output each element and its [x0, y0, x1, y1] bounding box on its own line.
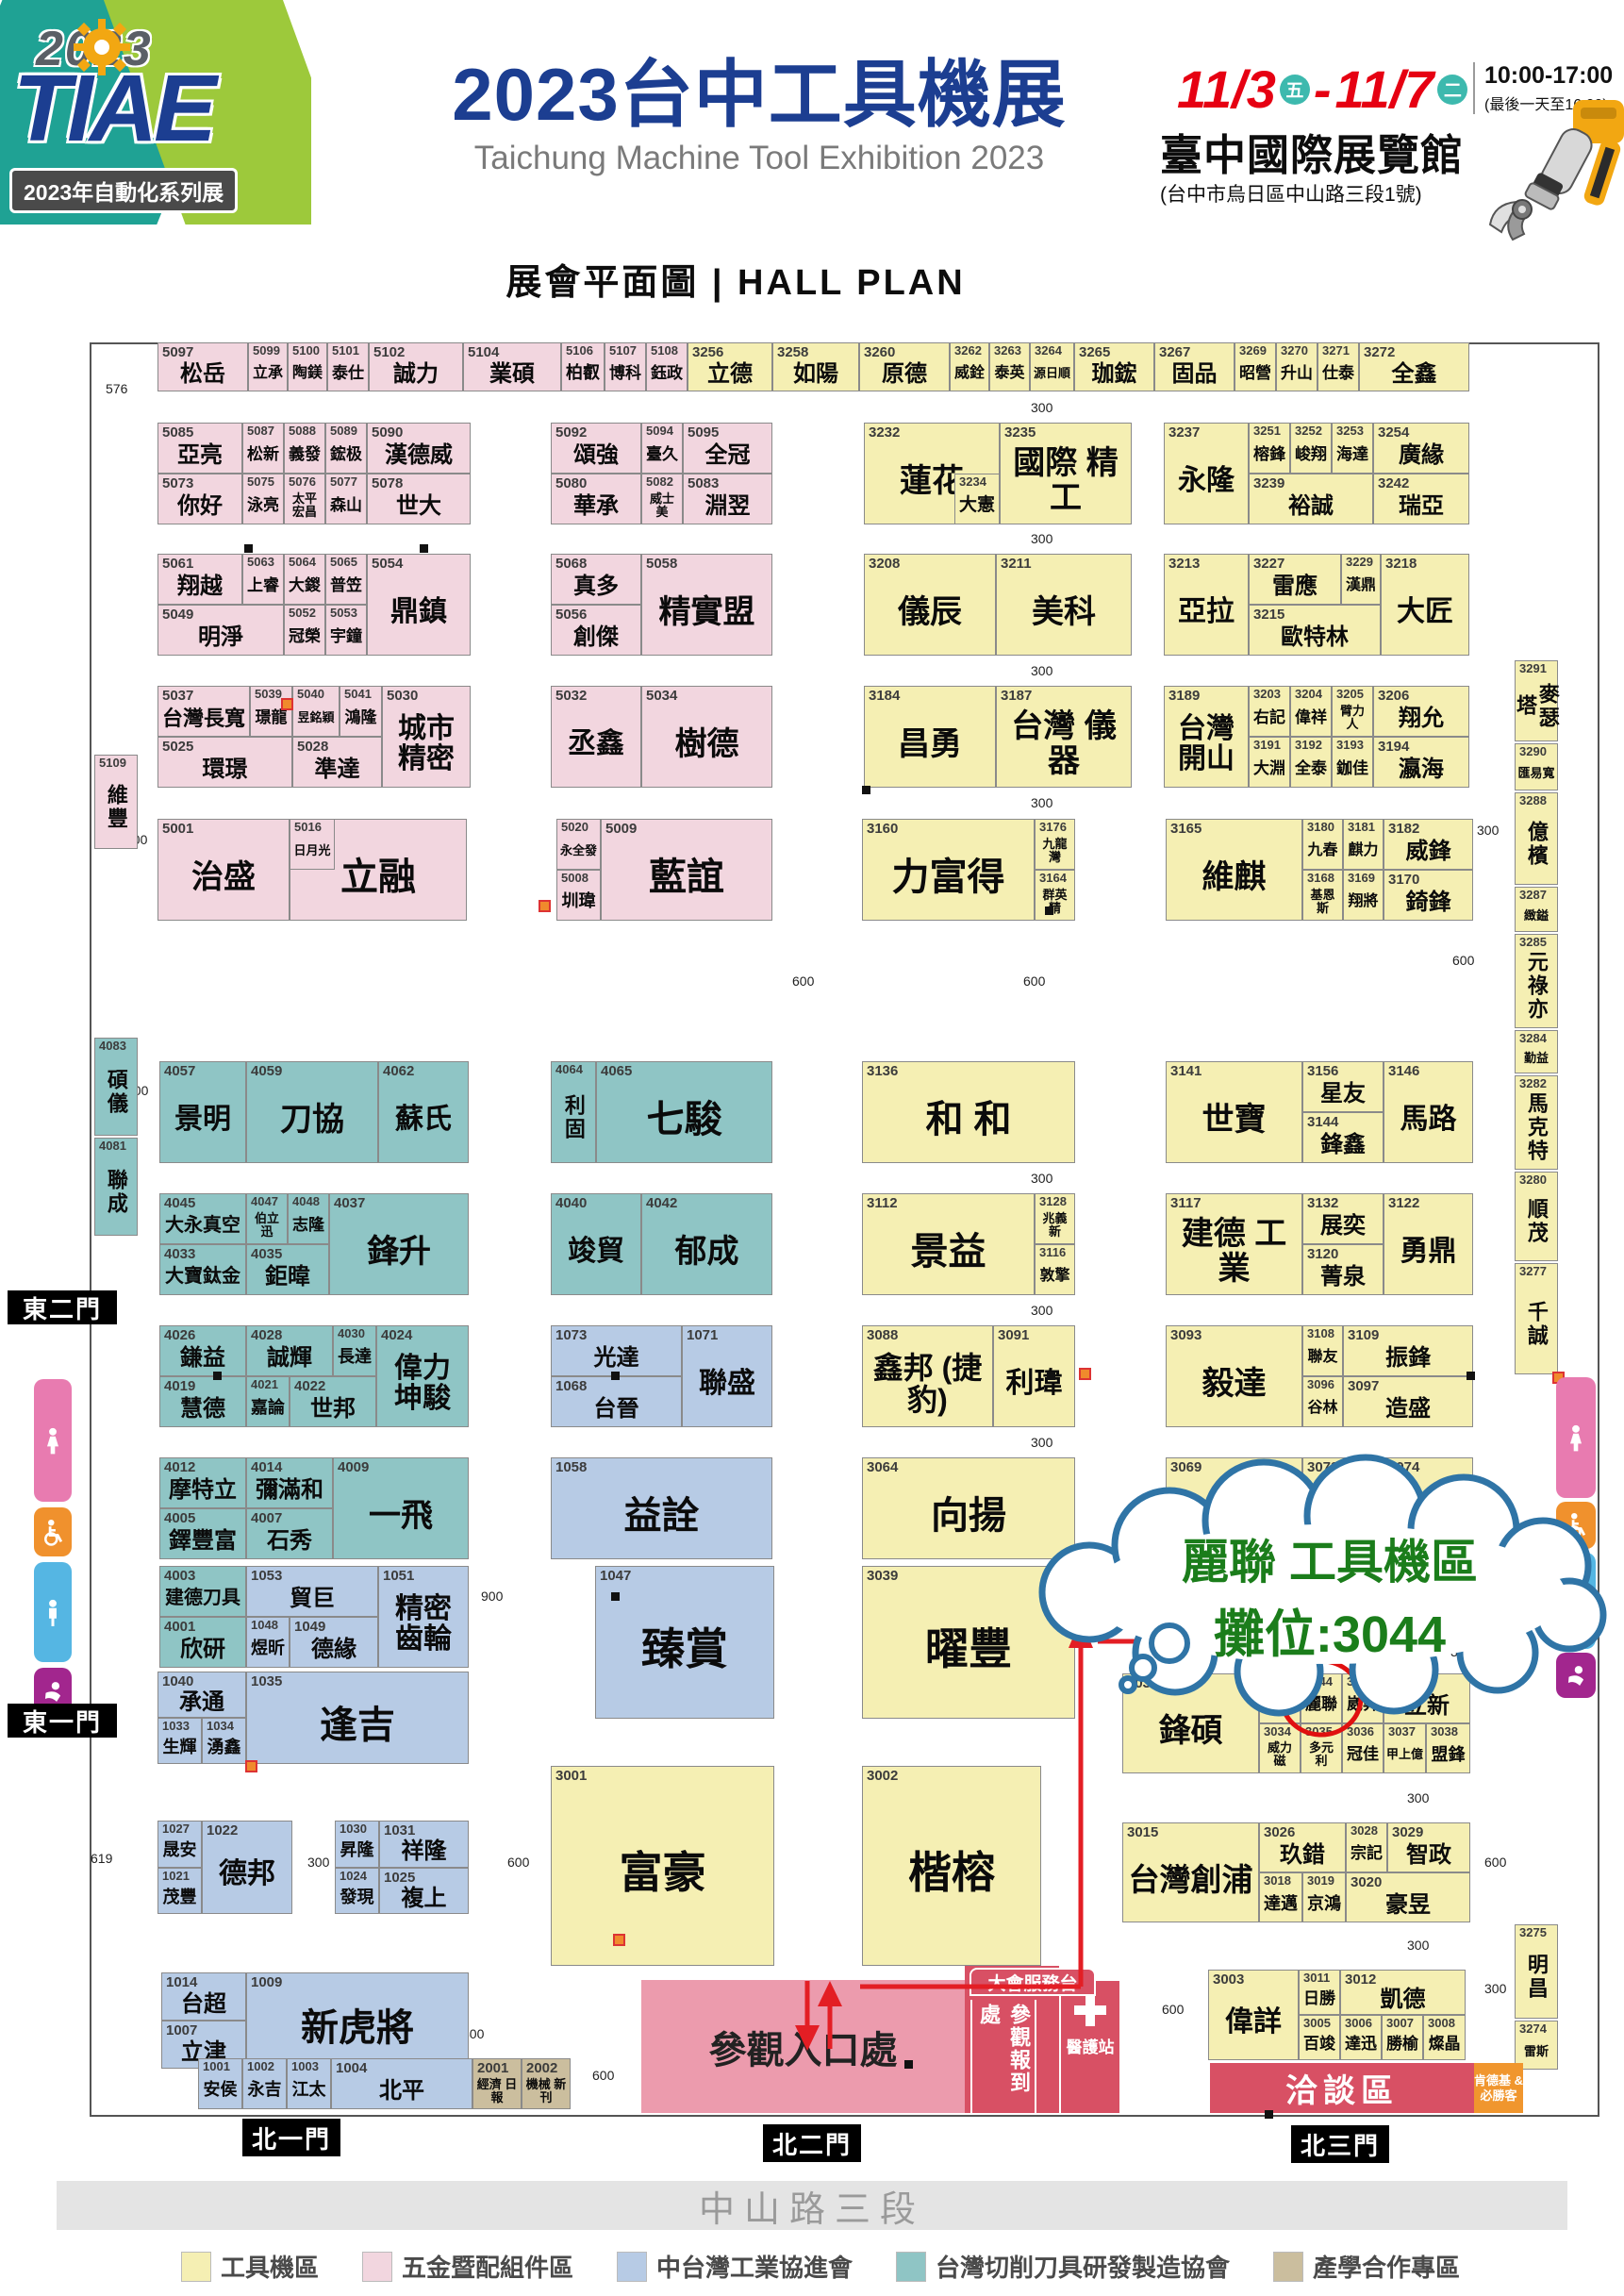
booth-number: 3270: [1277, 343, 1317, 358]
pillar-marker: [1265, 2110, 1273, 2119]
booth-3046: 3046立新: [1384, 1673, 1470, 1723]
booth-number: 3122: [1384, 1194, 1472, 1211]
booth-3108: 3108聯友: [1302, 1325, 1343, 1376]
booth-number: 3256: [688, 343, 771, 360]
booth-company-name: 泰仕: [328, 358, 368, 391]
booth-3120: 3120菁泉: [1302, 1244, 1384, 1295]
booth-number: 3001: [552, 1767, 773, 1784]
booth-company-name: 翔越: [158, 572, 241, 604]
booth-company-name: 鋒升: [330, 1211, 468, 1294]
booth-number: 3181: [1344, 820, 1383, 835]
booth-number: 3156: [1303, 1062, 1383, 1079]
booth-number: 3026: [1260, 1823, 1345, 1840]
booth-number: 5083: [684, 474, 771, 491]
booth-company-name: 益詮: [552, 1475, 771, 1558]
booth-number: 3019: [1303, 1873, 1345, 1888]
booth-5052: 5052冠榮: [284, 605, 325, 656]
legend-swatch: [617, 2252, 647, 2282]
booth-number: 3028: [1347, 1823, 1386, 1838]
booth-3275: 3275明昌: [1515, 1924, 1558, 2019]
booth-4007: 4007石秀: [246, 1508, 333, 1559]
pillar-marker: [862, 786, 870, 794]
booth-company-name: 敦擎: [1036, 1260, 1074, 1294]
booth-number: 3274: [1516, 2021, 1557, 2037]
booth-number: 3191: [1250, 738, 1289, 753]
booth-number: 3180: [1303, 820, 1342, 835]
booth-5101: 5101泰仕: [327, 342, 369, 391]
booth-number: 4014: [247, 1458, 332, 1475]
booth-number: 3237: [1165, 424, 1248, 441]
booth-number: 5030: [383, 687, 470, 704]
booth-number: 1009: [247, 1973, 468, 1990]
booth-number: 3260: [860, 343, 949, 360]
fire-equipment-marker: [245, 1760, 257, 1772]
booth-company-name: 複上: [380, 1886, 468, 1913]
booth-company-name: 精實盟: [642, 572, 771, 655]
booth-3206: 3206翔允: [1373, 686, 1469, 737]
booth-5108: 5108鈺政: [646, 342, 688, 391]
booth-1025: 1025複上: [379, 1868, 469, 1914]
booth-company-name: 城市 精密: [383, 704, 470, 787]
booth-4012: 4012摩特立: [159, 1457, 246, 1508]
booth-company-name: 立承: [249, 358, 287, 391]
booth-number: 3038: [1427, 1724, 1469, 1739]
booth-number: 1004: [332, 2059, 472, 2076]
booth-1001: 1001安侯: [198, 2058, 242, 2109]
pillar-marker: [1045, 1592, 1053, 1601]
booth-5088: 5088義發: [284, 423, 325, 474]
dimension-label: 300: [1407, 1938, 1429, 1953]
booth-number: 3011: [1300, 1971, 1339, 1986]
booth-company-name: 永全發: [557, 835, 600, 869]
booth-number: 3003: [1209, 1971, 1298, 1988]
booth-3284: 3284勤益: [1515, 1030, 1558, 1073]
booth-4040: 4040竣貿: [551, 1193, 641, 1295]
hall-map: 5097松岳5099立承5100陶鎂5101泰仕5102誠力5104業碩5106…: [0, 0, 1624, 2296]
booth-company-name: 歐特林: [1250, 623, 1380, 655]
booth-number: 5101: [328, 343, 368, 358]
legend-swatch: [362, 2252, 392, 2282]
booth-1048: 1048煜昕: [246, 1617, 290, 1668]
booth-number: 5073: [158, 474, 241, 491]
dimension-label: 600: [1452, 953, 1474, 968]
booth-3272: 3272全鑫: [1359, 342, 1469, 391]
booth-5058: 5058精實盟: [641, 554, 772, 656]
booth-3270: 3270升山: [1276, 342, 1317, 391]
booth-3287: 3287緻鎰: [1515, 887, 1558, 932]
booth-number: 3036: [1343, 1724, 1383, 1739]
booth-3160: 3160力富得: [862, 819, 1035, 921]
booth-5092: 5092頌強: [551, 423, 641, 474]
booth-number: 4021: [247, 1377, 289, 1392]
dimension-label: 600: [792, 973, 814, 989]
kfc-pizzahut-area: 肯德基 & 必勝客: [1474, 2063, 1523, 2113]
booth-2002: 2002機械 新刊: [522, 2058, 571, 2109]
booth-5100: 5100陶鎂: [288, 342, 327, 391]
booth-4083: 4083碩儀: [94, 1038, 138, 1136]
booth-3204: 3204偉祥: [1290, 686, 1332, 737]
booth-number: 5056: [552, 606, 640, 623]
booth-3109: 3109振鋒: [1343, 1325, 1473, 1376]
booth-1022: 1022德邦: [202, 1821, 292, 1914]
booth-3164: 3164群英精: [1035, 870, 1075, 921]
booth-number: 3146: [1384, 1062, 1472, 1079]
booth-5009: 5009藍誼: [601, 819, 772, 921]
booth-number: 4057: [160, 1062, 245, 1079]
booth-number: 4022: [290, 1377, 375, 1394]
booth-number: 1031: [380, 1822, 468, 1838]
dimension-label: 300: [307, 1855, 329, 1870]
booth-number: 1030: [336, 1822, 378, 1837]
legend-label: 產學合作專區: [1313, 2249, 1460, 2284]
booth-3043: 3043明光: [1259, 1673, 1301, 1723]
booth-company-name: 泰英: [990, 358, 1029, 391]
booth-3132: 3132展奕: [1302, 1193, 1384, 1244]
booth-number: 3168: [1303, 871, 1342, 886]
booth-number: 3008: [1424, 2016, 1465, 2031]
booth-number: 5001: [158, 820, 289, 837]
booth-number: 3277: [1516, 1264, 1557, 1279]
booth-number: 4062: [379, 1062, 468, 1079]
booth-company-name: 太平 宏昌: [285, 490, 324, 524]
booth-number: 1049: [290, 1618, 377, 1635]
booth-number: 4009: [334, 1458, 468, 1475]
booth-company-name: 基恩斯: [1303, 886, 1342, 920]
booth-3262: 3262威銓: [950, 342, 989, 391]
booth-company-name: 富豪: [552, 1784, 773, 1965]
pillar-marker: [213, 1372, 222, 1380]
dimension-label: 300: [1031, 1435, 1052, 1450]
booth-5039: 5039璟龍: [250, 686, 292, 737]
booth-number: 4040: [552, 1194, 640, 1211]
booth-company-name: 欣研: [160, 1635, 245, 1667]
booth-number: 3194: [1374, 738, 1468, 755]
booth-3239: 3239裕誠: [1249, 474, 1373, 524]
booth-company-name: 大淵: [1250, 753, 1289, 787]
booth-3001: 3001富豪: [551, 1766, 774, 1966]
booth-number: 3035: [1301, 1724, 1341, 1739]
booth-number: 3265: [1075, 343, 1153, 360]
booth-company-name: 承通: [158, 1689, 245, 1717]
booth-5094: 5094臺久: [641, 423, 683, 474]
booth-company-name: 瑞亞: [1374, 491, 1468, 524]
booth-number: 5104: [464, 343, 560, 360]
booth-number: 3258: [773, 343, 858, 360]
booth-3277: 3277千誠: [1515, 1263, 1558, 1374]
booth-company-name: 勝榆: [1383, 2031, 1422, 2059]
booth-5040: 5040昱銘穎: [292, 686, 340, 737]
booth-3254: 3254廣緣: [1373, 423, 1469, 474]
booth-number: 3007: [1383, 2016, 1422, 2031]
booth-company-name: 立新: [1384, 1691, 1469, 1722]
booth-company-name: 誠力: [370, 360, 462, 391]
booth-company-name: 全泰: [1291, 753, 1331, 787]
booth-company-name: 博科: [605, 358, 645, 391]
booth-number: 3211: [997, 555, 1131, 572]
booth-3007: 3007勝榆: [1382, 2015, 1423, 2060]
booth-number: 3034: [1260, 1724, 1300, 1739]
medical-station: 醫護站: [1061, 1981, 1119, 2113]
booth-5083: 5083淵翌: [683, 474, 772, 524]
booth-company-name: 美科: [997, 572, 1131, 655]
booth-company-name: 志隆: [289, 1209, 328, 1243]
booth-3008: 3008燦晶: [1423, 2015, 1466, 2060]
booth-company-name: 雷應: [1250, 572, 1340, 604]
booth-company-name: 裕誠: [1250, 491, 1372, 524]
booth-company-name: 一飛: [334, 1475, 468, 1558]
booth-number: 5058: [642, 555, 771, 572]
booth-company-name: 大永真空: [160, 1211, 245, 1243]
booth-number: 1007: [162, 2021, 245, 2038]
booth-number: 5100: [289, 343, 326, 358]
booth-number: 4035: [247, 1245, 328, 1262]
booth-company-name: 台灣 儀器: [997, 704, 1131, 787]
booth-company-name: 九春: [1303, 835, 1342, 869]
booth-number: 1051: [379, 1567, 468, 1584]
booth-3203: 3203右記: [1249, 686, 1290, 737]
legend-swatch: [1273, 2252, 1303, 2282]
booth-number: 4019: [160, 1377, 245, 1394]
booth-3290: 3290匯易寬: [1515, 743, 1558, 790]
door-北三門: 北三門: [1291, 2125, 1389, 2163]
negotiation-area: 洽談區: [1210, 2063, 1474, 2113]
booth-5073: 5073你好: [157, 474, 242, 524]
booth-company-name: 明光: [1260, 1689, 1300, 1722]
booth-number: 1035: [247, 1672, 468, 1689]
booth-company-name: 聯成: [95, 1154, 137, 1235]
booth-number: 3170: [1384, 871, 1472, 888]
booth-company-name: 伯立迅: [247, 1209, 287, 1243]
dimension-label: 300: [1031, 1171, 1052, 1186]
booth-number: 3044: [1301, 1674, 1341, 1689]
booth-3122: 3122勇鼎: [1384, 1193, 1473, 1295]
booth-company-name: 右記: [1250, 702, 1289, 736]
booth-company-name: 新虎將: [247, 1990, 468, 2068]
fire-equipment-marker: [281, 698, 293, 710]
booth-number: 3215: [1250, 606, 1380, 623]
booth-number: 4030: [334, 1326, 375, 1341]
booth-company-name: 臂力人: [1333, 702, 1372, 736]
booth-3006: 3006達迅: [1340, 2015, 1382, 2060]
booth-3096: 3096谷林: [1302, 1376, 1343, 1427]
booth-4019: 4019慧德: [159, 1376, 246, 1427]
booth-company-name: 真多: [552, 572, 640, 604]
booth-4014: 4014彌滿和: [246, 1457, 333, 1508]
booth-4042: 4042郁成: [641, 1193, 772, 1295]
booth-company-name: 台晉: [552, 1394, 681, 1426]
booth-company-name: 亞拉: [1165, 572, 1248, 655]
door-東一門: 東一門: [8, 1704, 117, 1738]
booth-number: 5087: [243, 424, 283, 439]
women-restroom-icon: [34, 1379, 72, 1502]
booth-3012: 3012凱德: [1340, 1970, 1466, 2015]
booth-company-name: 燦晶: [1424, 2031, 1465, 2059]
booth-1021: 1021茂豐: [157, 1868, 202, 1914]
booth-number: 4081: [95, 1139, 137, 1154]
booth-company-name: 鉫佳: [1333, 753, 1372, 787]
booth-3194: 3194瀛海: [1373, 737, 1469, 788]
booth-3182: 3182威鋒: [1384, 819, 1473, 870]
booth-3187: 3187台灣 儀器: [996, 686, 1132, 788]
booth-number: 5089: [326, 424, 366, 439]
legend-label: 中台灣工業協進會: [656, 2249, 853, 2284]
booth-number: 5075: [243, 474, 283, 490]
booth-3264: 3264源日順: [1030, 342, 1074, 391]
booth-number: 3284: [1516, 1031, 1557, 1046]
booth-company-name: 蘇氏: [379, 1079, 468, 1162]
booth-number: 5080: [552, 474, 640, 491]
road-label: 中山路三段: [57, 2181, 1567, 2230]
booth-number: 3264: [1031, 343, 1073, 358]
booth-5063: 5063上睿: [242, 554, 284, 605]
booth-number: 1001: [199, 2059, 241, 2074]
booth-number: 4064: [552, 1062, 595, 1077]
booth-5065: 5065普笠: [325, 554, 367, 605]
booth-company-name: 祥隆: [380, 1838, 468, 1867]
booth-number: 3074: [1384, 1458, 1472, 1475]
booth-number: 1058: [552, 1458, 771, 1475]
booth-4047: 4047伯立迅: [246, 1193, 288, 1244]
booth-company-name: 圳瑋: [557, 886, 600, 920]
booth-number: 3043: [1260, 1674, 1300, 1689]
booth-3285: 3285元祿亦: [1515, 934, 1558, 1028]
booth-number: 4059: [247, 1062, 377, 1079]
booth-5034: 5034樹德: [641, 686, 772, 788]
booth-company-name: 達迅: [1341, 2031, 1381, 2059]
accessible-restroom-icon: [34, 1507, 72, 1556]
booth-company-name: 勇鼎: [1384, 1211, 1472, 1294]
booth-4001: 4001欣研: [159, 1617, 246, 1668]
booth-1027: 1027晟安: [157, 1821, 202, 1868]
booth-number: 3012: [1341, 1971, 1465, 1988]
booth-company-name: 鋐极: [326, 439, 366, 473]
booth-number: 5053: [326, 606, 366, 621]
booth-3144: 3144鋒鑫: [1302, 1112, 1384, 1163]
booth-number: 3039: [863, 1567, 1074, 1584]
booth-company-name: 湧鑫: [203, 1734, 245, 1763]
booth-3288: 3288億檳: [1515, 792, 1558, 885]
booth-company-name: 冠榮: [285, 621, 324, 655]
booth-number: 4045: [160, 1194, 245, 1211]
booth-5028: 5028準達: [292, 737, 382, 788]
booth-number: 3205: [1333, 687, 1372, 702]
booth-3020: 3020豪昱: [1346, 1872, 1470, 1922]
booth-3136: 3136和 和: [862, 1061, 1075, 1163]
booth-company-name: 偉祥: [1291, 702, 1331, 736]
callout-booth-number: 攤位:3044: [1085, 1592, 1575, 1667]
booth-number: 5064: [285, 555, 324, 570]
booth-company-name: 力富得: [863, 837, 1034, 920]
booth-company-name: 維麒: [1167, 837, 1301, 920]
booth-company-name: 億檳: [1516, 808, 1557, 884]
booth-4059: 4059刀協: [246, 1061, 378, 1163]
booth-3258: 3258如陽: [772, 342, 859, 391]
door-北二門: 北二門: [763, 2124, 861, 2162]
pillar-marker: [1047, 1372, 1055, 1380]
dimension-label: 600: [1162, 2002, 1184, 2017]
pillar-marker: [244, 544, 253, 553]
booth-number: 4042: [642, 1194, 771, 1211]
booth-company-name: 永隆: [1165, 441, 1248, 524]
booth-number: 3132: [1303, 1194, 1383, 1211]
booth-3218: 3218大匠: [1381, 554, 1469, 656]
booth-number: 5041: [340, 687, 381, 702]
visitor-entrance-area: 參觀入口處: [641, 1980, 965, 2113]
booth-5056: 5056創傑: [551, 605, 641, 656]
booth-number: 3108: [1303, 1326, 1342, 1341]
booth-company-name: 勤益: [1516, 1046, 1557, 1073]
booth-company-name: 世大: [368, 491, 470, 524]
booth-company-name: 緻鎰: [1516, 903, 1557, 931]
hall-plan-page: 2023 TIAE 2023年自動化系列展 2023台中工具機展 Taichun…: [0, 0, 1624, 2296]
booth-1040: 1040承通: [157, 1672, 246, 1718]
booth-company-name: 創傑: [552, 623, 640, 655]
booth-3091: 3091利瑋: [993, 1325, 1075, 1427]
booth-number: 3091: [994, 1326, 1074, 1343]
booth-company-name: 順茂: [1516, 1188, 1557, 1260]
booth-number: 5009: [602, 820, 771, 837]
booth-3165: 3165維麒: [1166, 819, 1302, 921]
booth-company-name: 郁成: [642, 1211, 771, 1294]
booth-number: 3144: [1303, 1113, 1383, 1130]
booth-5064: 5064大鍐: [284, 554, 325, 605]
booth-company-name: 經濟 日報: [473, 2076, 521, 2108]
booth-number: 5052: [285, 606, 324, 621]
booth-number: 1073: [552, 1326, 681, 1343]
booth-company-name: 偉力 坤駿: [377, 1343, 468, 1426]
booth-1004: 1004北平: [331, 2058, 472, 2109]
booth-3034: 3034威力磁: [1259, 1723, 1301, 1773]
booth-3019: 3019京鴻: [1302, 1872, 1346, 1922]
booth-3280: 3280順茂: [1515, 1172, 1558, 1261]
booth-4057: 4057景明: [159, 1061, 246, 1163]
booth-number: 3239: [1250, 474, 1372, 491]
booth-number: 3254: [1374, 424, 1468, 441]
booth-3146: 3146馬路: [1384, 1061, 1473, 1163]
booth-company-name: 鼎鎮: [368, 572, 470, 655]
fire-equipment-marker: [539, 900, 551, 912]
booth-3253: 3253海達: [1332, 423, 1373, 474]
booth-company-name: 威力磁: [1260, 1739, 1300, 1772]
booth-3039: 3039曜豐: [862, 1566, 1075, 1719]
booth-3227: 3227雷應: [1249, 554, 1341, 605]
booth-number: 3093: [1167, 1326, 1301, 1343]
booth-number: 1040: [158, 1672, 245, 1689]
booth-number: 1022: [203, 1822, 291, 1838]
booth-5085: 5085亞亮: [157, 423, 242, 474]
booth-company-name: 松新: [243, 439, 283, 473]
pillar-marker: [611, 1372, 620, 1380]
booth-number: 3029: [1388, 1823, 1469, 1840]
booth-5089: 5089鋐极: [325, 423, 367, 474]
booth-5078: 5078世大: [367, 474, 471, 524]
booth-company-name: 松岳: [158, 360, 247, 391]
booth-company-name: 千誠: [1516, 1279, 1557, 1373]
booth-number: 5054: [368, 555, 470, 572]
booth-company-name: 碩儀: [95, 1054, 137, 1135]
booth-company-name: 江太: [288, 2074, 330, 2108]
booth-company-name: 精密 齒輪: [379, 1584, 468, 1667]
booth-number: 3189: [1165, 687, 1248, 704]
booth-4081: 4081聯成: [94, 1138, 138, 1236]
booth-company-name: 業碩: [464, 360, 560, 391]
booth-company-name: 威士美: [642, 490, 682, 524]
booth-3002: 3002楷榕: [862, 1766, 1041, 1966]
booth-1002: 1002永吉: [242, 2058, 287, 2109]
booth-number: 5097: [158, 343, 247, 360]
dimension-label: 576: [106, 381, 127, 396]
booth-3088: 3088鑫邦 (捷豹): [862, 1325, 993, 1427]
